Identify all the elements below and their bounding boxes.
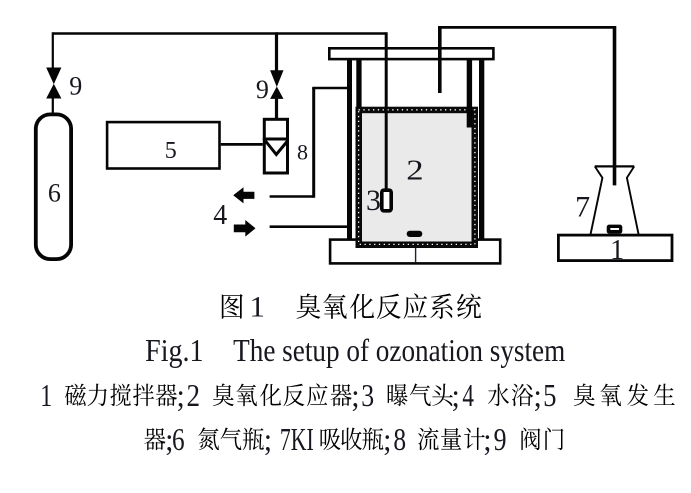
svg-text:7: 7: [575, 191, 590, 224]
svg-text:;: ;: [264, 421, 272, 457]
svg-text:8: 8: [297, 139, 308, 164]
svg-text:5: 5: [543, 377, 556, 413]
svg-text:7KI: 7KI: [280, 421, 314, 457]
svg-text:3: 3: [366, 184, 381, 217]
svg-text:9: 9: [494, 421, 507, 457]
svg-text:9: 9: [69, 72, 82, 101]
svg-text:8: 8: [393, 421, 406, 457]
svg-text:;: ;: [534, 377, 542, 413]
svg-text:;: ;: [351, 377, 359, 413]
svg-text:6: 6: [172, 421, 185, 457]
svg-text:;: ;: [483, 421, 491, 457]
svg-text:Fig.1: Fig.1: [145, 333, 203, 368]
svg-text:;: ;: [177, 377, 185, 413]
svg-text:;: ;: [452, 377, 460, 413]
svg-text:6: 6: [48, 178, 61, 207]
svg-text:1: 1: [40, 377, 52, 413]
svg-text:5: 5: [165, 138, 177, 164]
svg-text:9: 9: [256, 75, 269, 104]
svg-text:1: 1: [250, 290, 265, 323]
svg-text:1: 1: [610, 235, 624, 266]
svg-text:3: 3: [361, 377, 374, 413]
svg-text:4: 4: [213, 200, 227, 231]
svg-text:2: 2: [187, 377, 201, 413]
svg-text:2: 2: [406, 155, 423, 186]
svg-text:;: ;: [383, 421, 391, 457]
svg-text:The setup of ozonation system: The setup of ozonation system: [233, 333, 566, 368]
svg-text:4: 4: [462, 377, 474, 413]
